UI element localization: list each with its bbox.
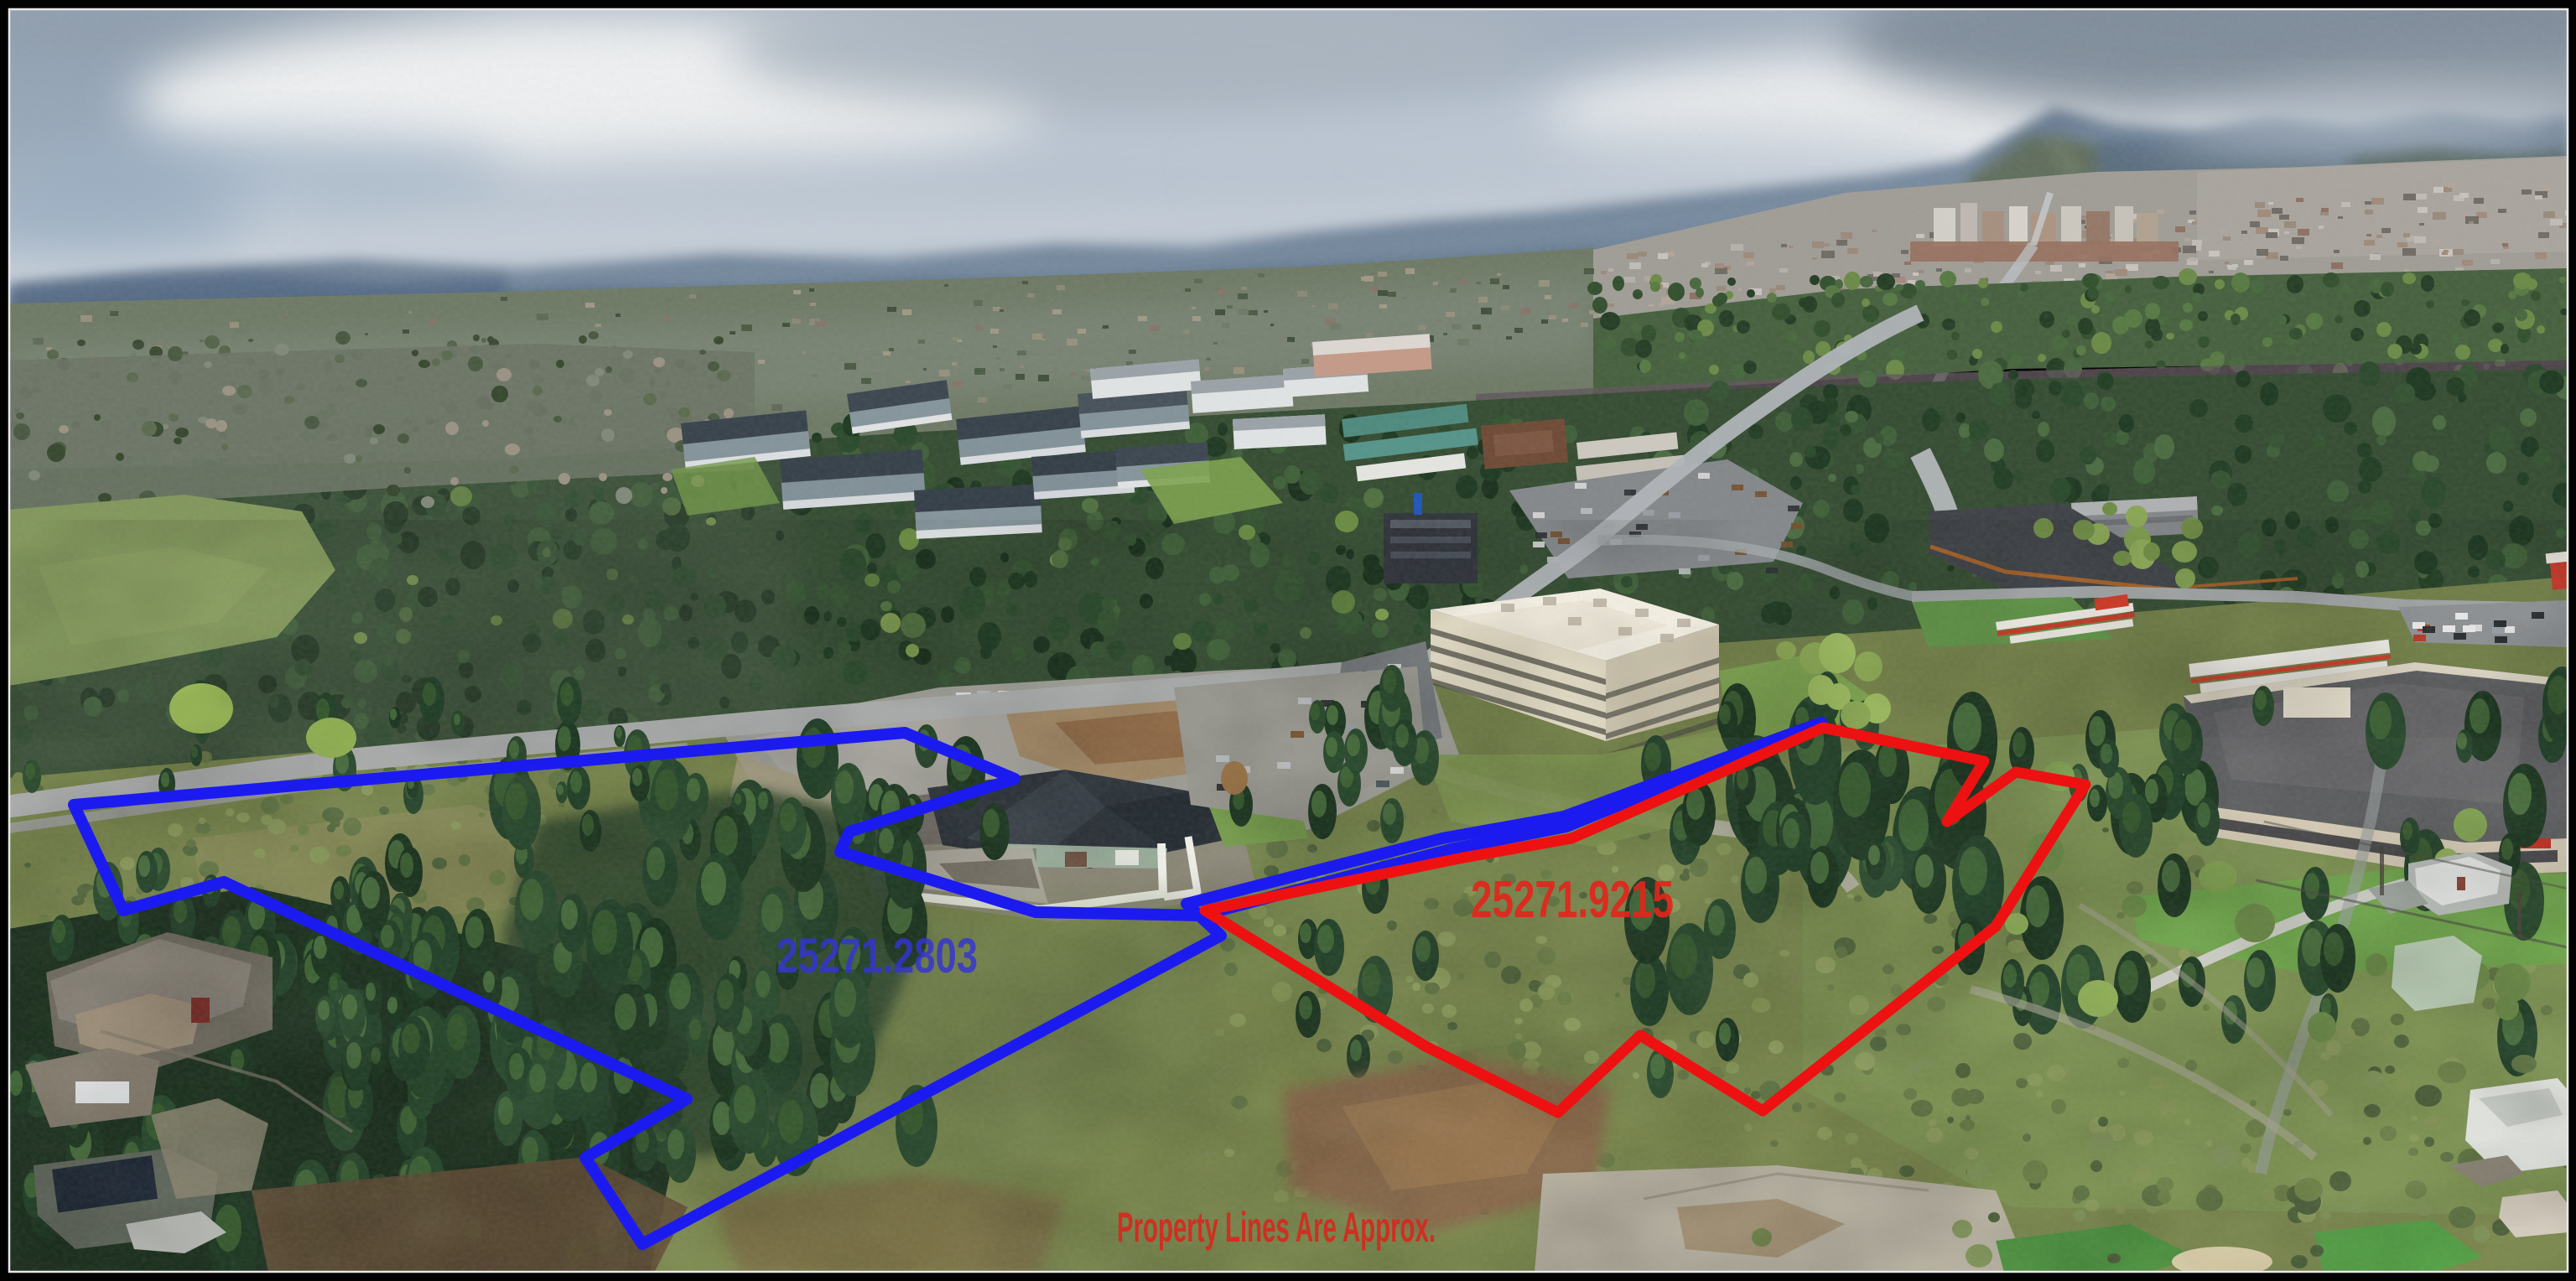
svg-text:25271.2803: 25271.2803 [776,929,978,983]
svg-text:25271.9215: 25271.9215 [1471,871,1674,929]
svg-text:Property Lines Are Approx.: Property Lines Are Approx. [1117,1204,1436,1251]
